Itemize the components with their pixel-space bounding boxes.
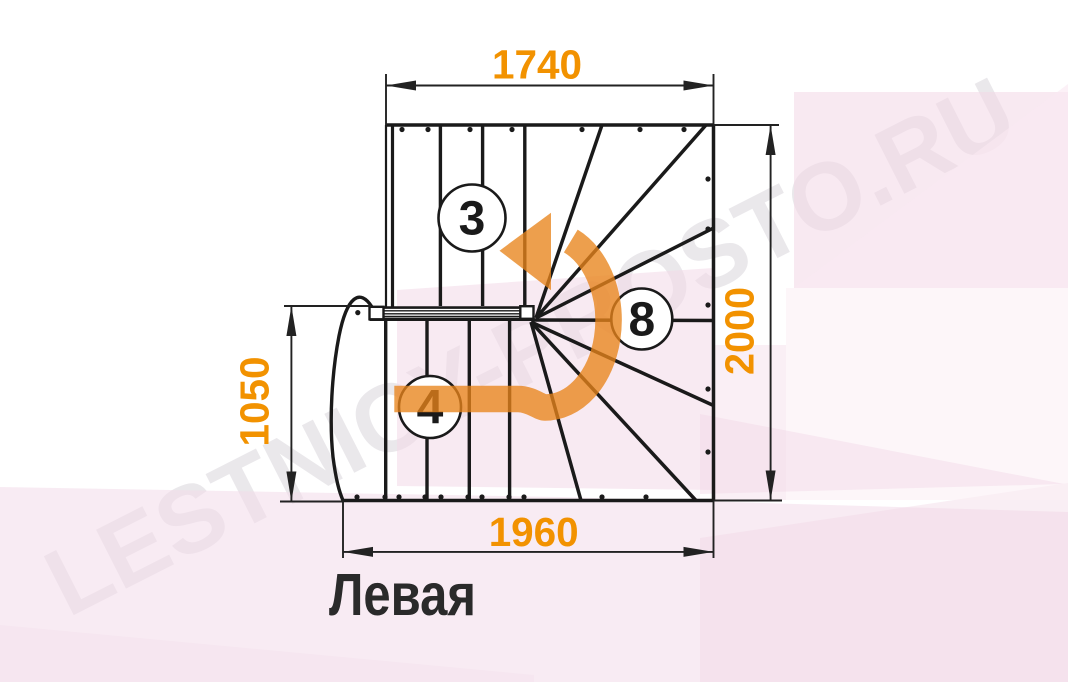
svg-text:1960: 1960	[489, 509, 579, 555]
svg-text:1740: 1740	[492, 42, 582, 88]
svg-text:8: 8	[628, 294, 655, 347]
svg-text:3: 3	[459, 193, 486, 246]
svg-text:Левая: Левая	[329, 562, 476, 628]
svg-text:1050: 1050	[232, 357, 278, 447]
svg-text:2000: 2000	[717, 287, 763, 375]
